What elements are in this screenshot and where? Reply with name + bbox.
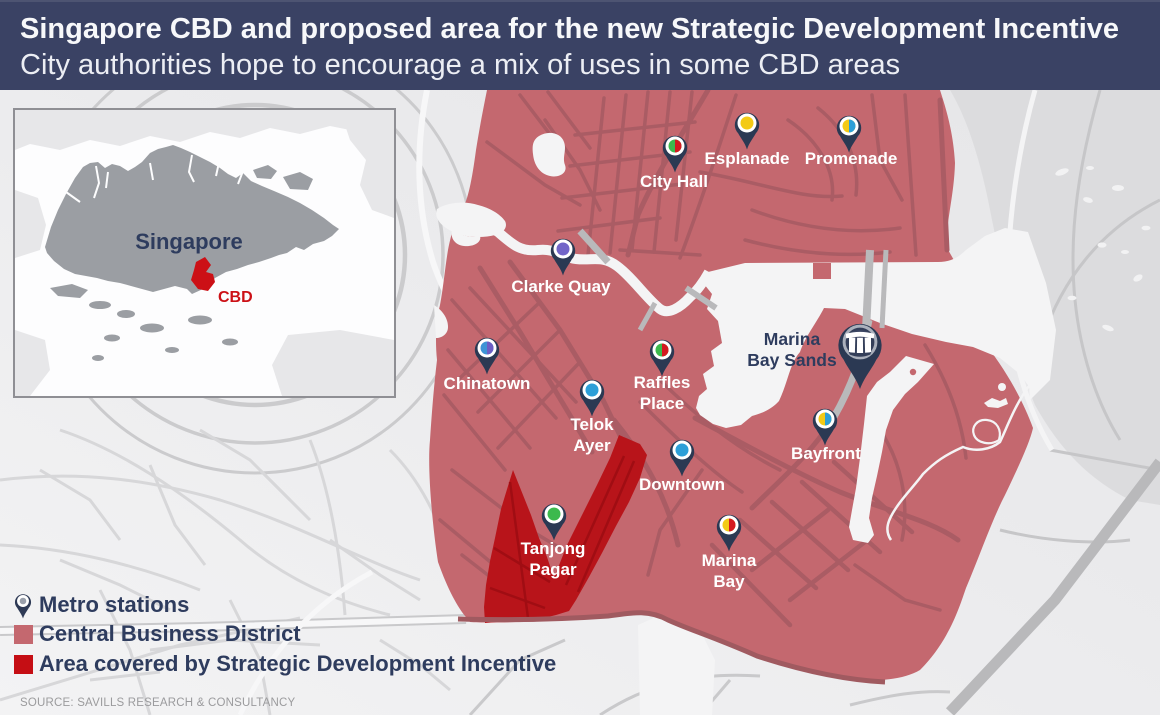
svg-text:Chinatown: Chinatown xyxy=(444,374,531,393)
svg-text:Raffles: Raffles xyxy=(634,373,691,392)
svg-text:Metro stations: Metro stations xyxy=(39,592,189,617)
svg-text:Singapore: Singapore xyxy=(135,229,243,254)
svg-text:Tanjong: Tanjong xyxy=(521,539,586,558)
svg-text:SOURCE: SAVILLS RESEARCH & CON: SOURCE: SAVILLS RESEARCH & CONSULTANCY xyxy=(20,697,295,709)
svg-text:Bayfront: Bayfront xyxy=(791,444,861,463)
svg-text:Esplanade: Esplanade xyxy=(704,149,789,168)
svg-text:CBD: CBD xyxy=(218,289,253,306)
svg-text:Bay: Bay xyxy=(713,572,745,591)
svg-text:Central Business District: Central Business District xyxy=(39,621,301,646)
svg-text:Pagar: Pagar xyxy=(529,560,577,579)
svg-text:Promenade: Promenade xyxy=(805,149,898,168)
svg-text:Telok: Telok xyxy=(570,415,614,434)
svg-text:Downtown: Downtown xyxy=(639,475,725,494)
svg-text:Marina: Marina xyxy=(764,329,821,349)
svg-text:Clarke Quay: Clarke Quay xyxy=(511,277,611,296)
svg-text:Place: Place xyxy=(640,394,684,413)
svg-text:Bay Sands: Bay Sands xyxy=(747,350,837,370)
svg-text:City Hall: City Hall xyxy=(640,172,708,191)
svg-text:Ayer: Ayer xyxy=(573,436,611,455)
svg-text:Marina: Marina xyxy=(702,551,757,570)
svg-text:Area covered by Strategic Deve: Area covered by Strategic Development In… xyxy=(39,651,556,676)
